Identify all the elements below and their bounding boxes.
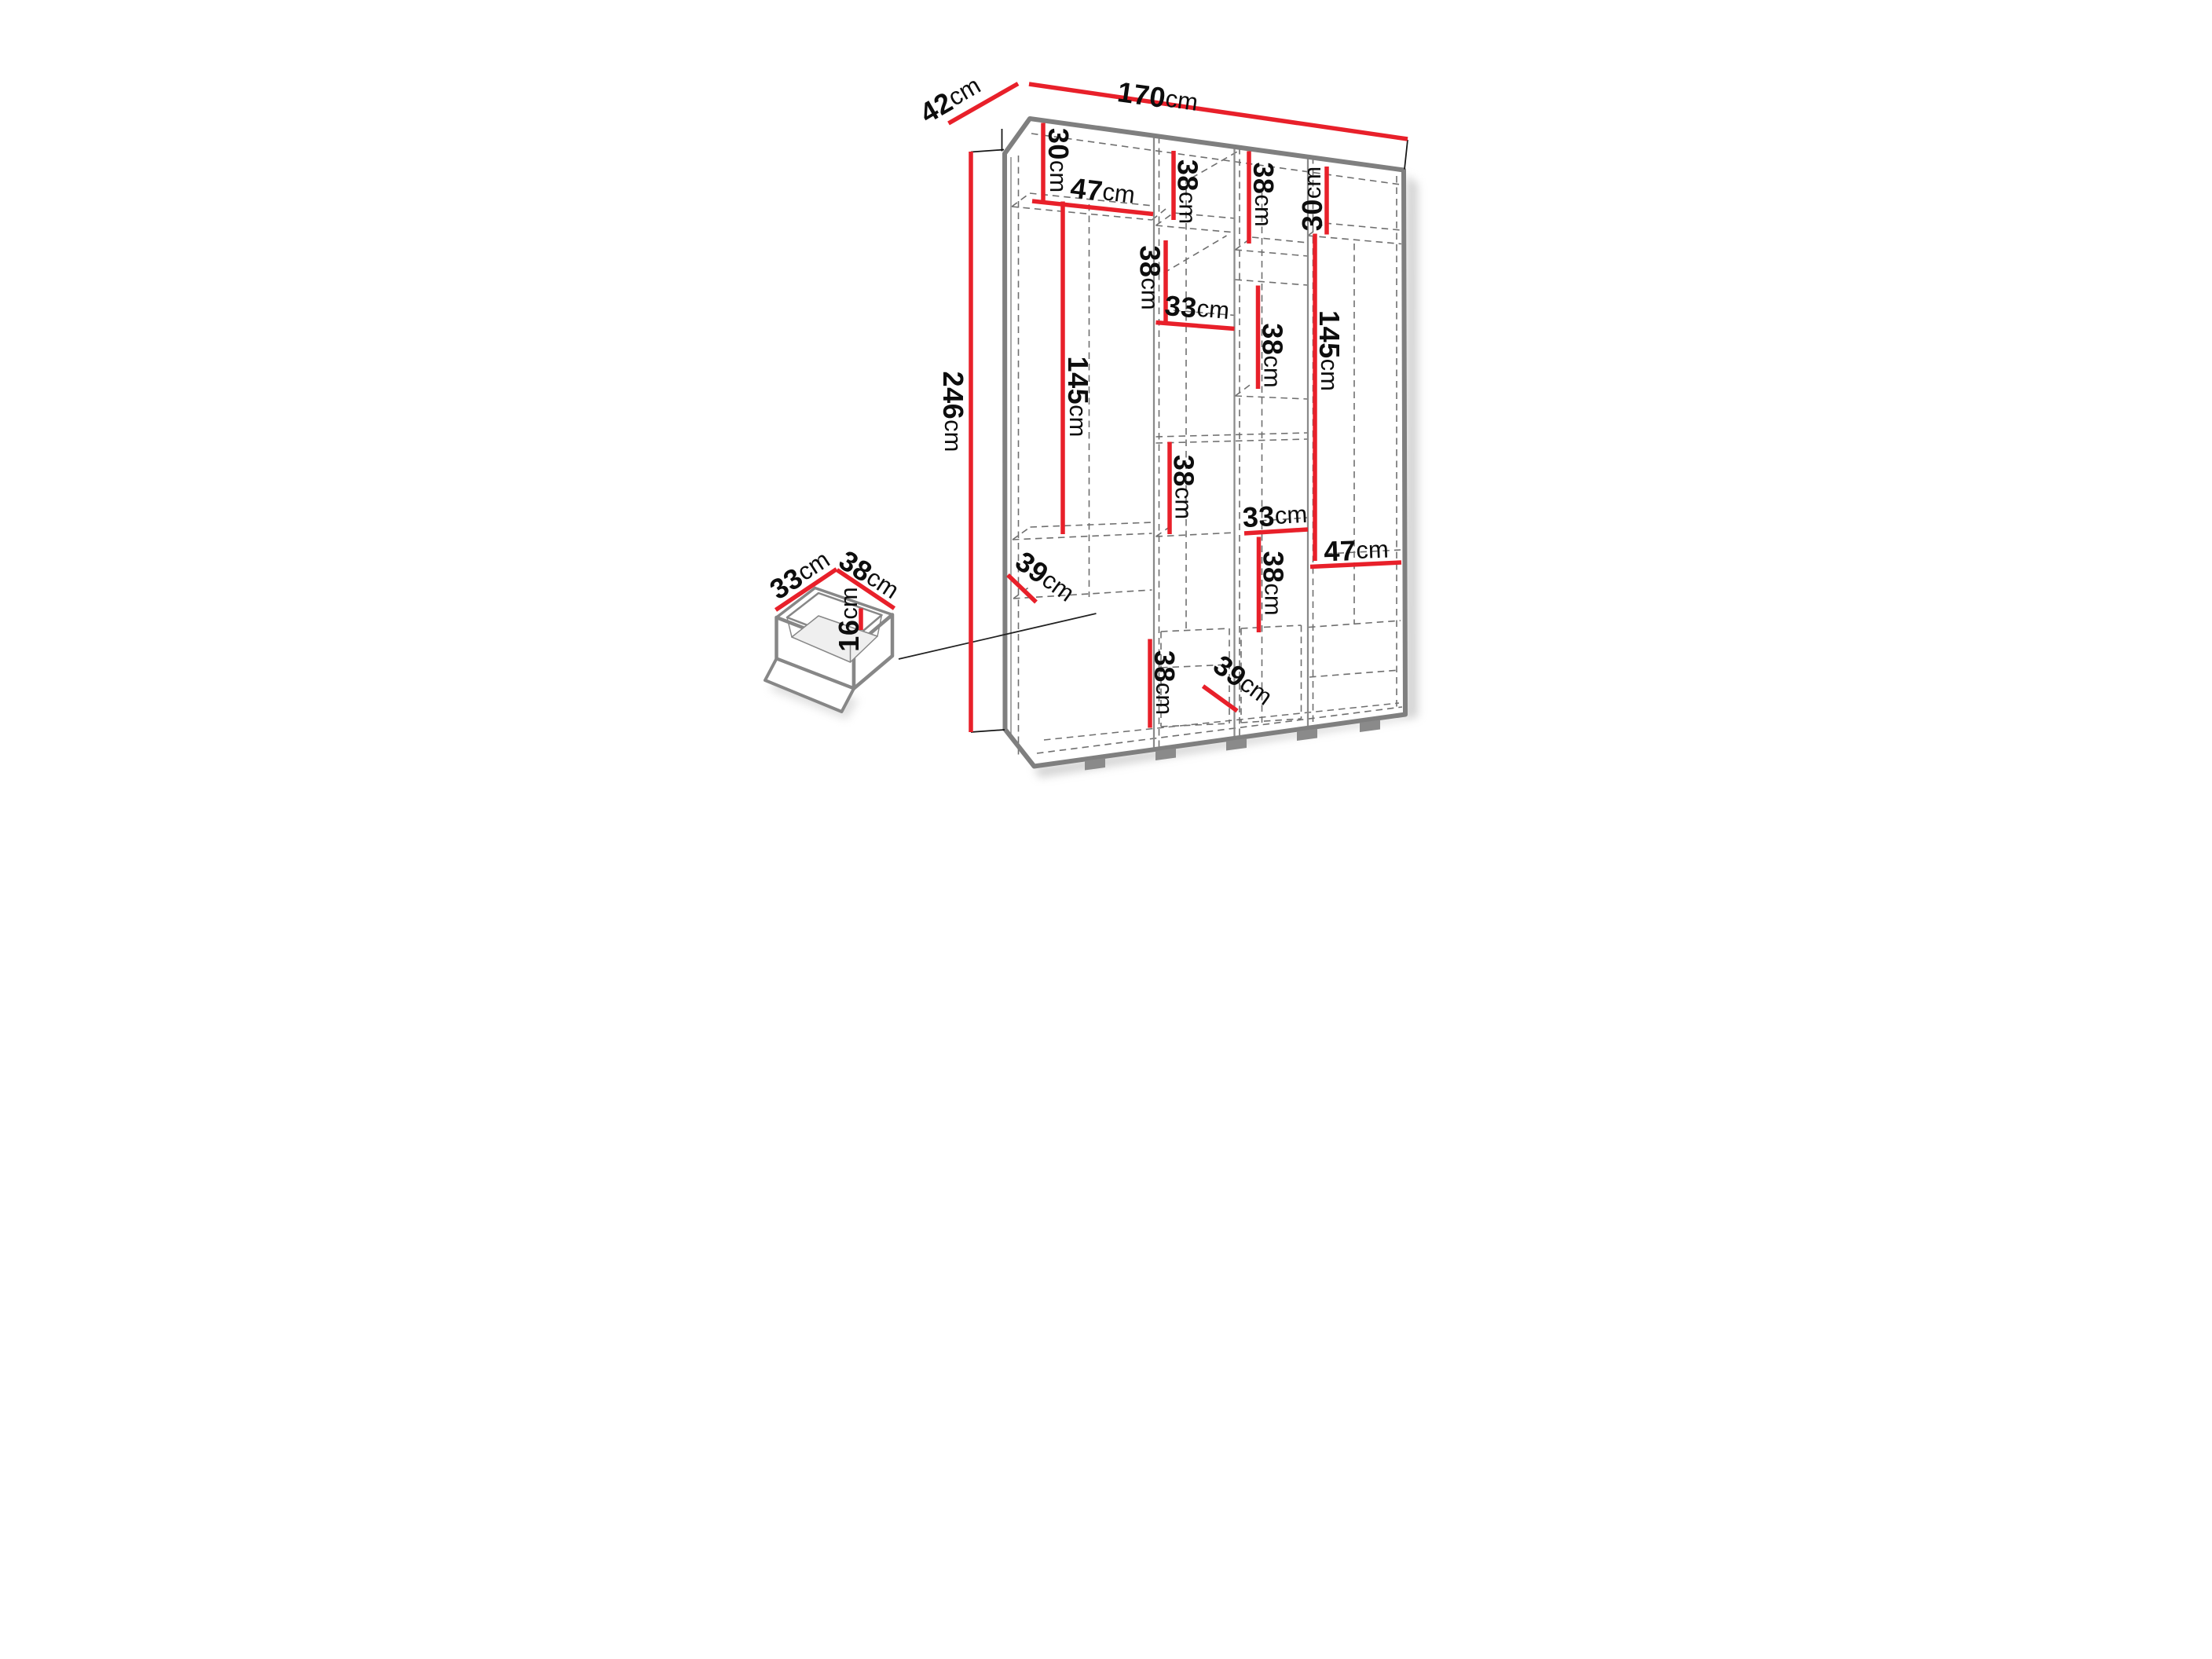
dimension-col2-38a: 38cm (1172, 151, 1204, 224)
dimension-label: 246cm (938, 372, 970, 452)
dimension-label: 38cm (1168, 455, 1200, 519)
dimension-label: 38cm (1134, 245, 1166, 309)
dimension-label: 145cm (1063, 357, 1095, 438)
dimension-label: 16cm (833, 587, 865, 651)
wardrobe-dimension-diagram: 170cm42cm246cm30cm47cm145cm39cm38cm38cm3… (553, 0, 1659, 829)
dimension-label: 47cm (1324, 533, 1390, 567)
dimension-label: 170cm (1115, 75, 1200, 119)
dimension-label: 30cm (1043, 128, 1075, 192)
dimension-drawer-16: 16cm (833, 587, 865, 651)
dimension-label: 30cm (1296, 167, 1328, 231)
dimension-col4-30: 30cm (1296, 167, 1328, 235)
dimension-label: 145cm (1314, 310, 1346, 391)
dimension-label: 38cm (1248, 162, 1280, 226)
dimension-label: 38cm (1149, 650, 1181, 715)
dimension-depth-42: 42cm (914, 69, 1018, 130)
diagram-canvas: 170cm42cm246cm30cm47cm145cm39cm38cm38cm3… (553, 0, 1659, 829)
dimension-height-246: 246cm (938, 152, 972, 732)
dimension-label: 38cm (1257, 323, 1289, 387)
dimension-col3-33: 33cm (1242, 497, 1308, 533)
dimension-label: 38cm (1172, 159, 1204, 224)
dimension-col2-38d: 38cm (1149, 639, 1181, 728)
dimension-col4-47: 47cm (1310, 533, 1401, 567)
dimension-label: 33cm (1242, 497, 1308, 533)
dimension-col2-38b: 38cm (1134, 240, 1166, 321)
dimension-label: 38cm (1258, 551, 1290, 615)
